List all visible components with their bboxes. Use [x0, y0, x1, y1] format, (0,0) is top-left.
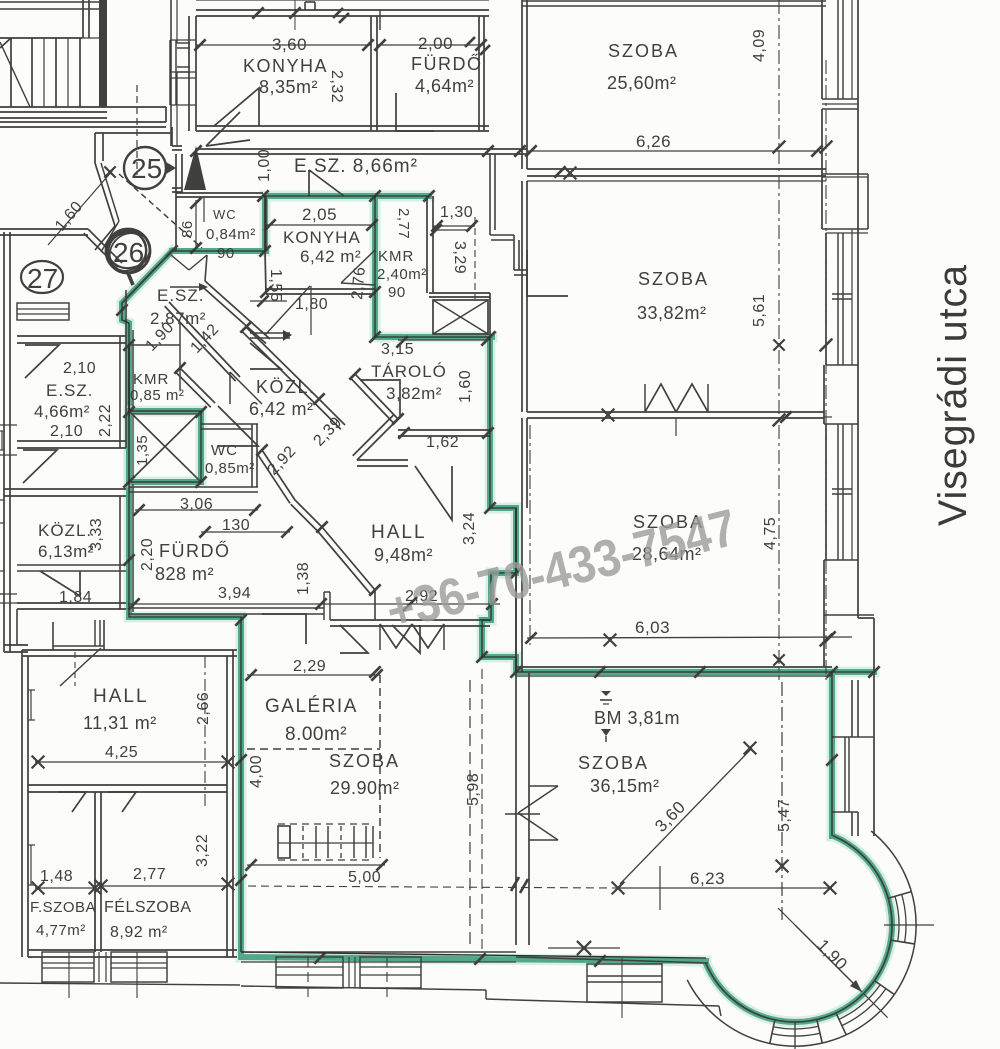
svg-text:2,10: 2,10: [50, 423, 83, 440]
svg-text:0,85m²: 0,85m²: [205, 460, 255, 477]
svg-text:KÖZL.: KÖZL.: [38, 521, 92, 540]
svg-text:90: 90: [217, 245, 235, 262]
svg-text:6,42 m²: 6,42 m²: [300, 247, 361, 266]
svg-text:FÉLSZOBA: FÉLSZOBA: [104, 897, 192, 916]
svg-text:GALÉRIA: GALÉRIA: [265, 696, 358, 717]
svg-text:F.SZOBA: F.SZOBA: [30, 899, 96, 916]
svg-text:1,62: 1,62: [426, 434, 459, 451]
svg-text:6,42 m²: 6,42 m²: [249, 399, 314, 419]
svg-text:5,47: 5,47: [776, 799, 793, 832]
svg-text:SZOBA: SZOBA: [608, 41, 679, 61]
svg-text:8.00m²: 8.00m²: [285, 724, 347, 745]
svg-text:SZOBA: SZOBA: [329, 751, 400, 771]
svg-text:SZOBA: SZOBA: [638, 269, 709, 289]
svg-text:25,60m²: 25,60m²: [607, 73, 677, 93]
svg-text:36,15m²: 36,15m²: [590, 776, 660, 796]
svg-text:3,82m²: 3,82m²: [386, 384, 442, 403]
svg-text:1,35: 1,35: [134, 435, 151, 466]
svg-text:TÁROLÓ: TÁROLÓ: [371, 362, 447, 381]
svg-text:3,94: 3,94: [218, 585, 251, 602]
svg-text:11,31 m²: 11,31 m²: [83, 713, 157, 733]
svg-text:4,64m²: 4,64m²: [415, 76, 474, 96]
svg-text:3,24: 3,24: [461, 512, 478, 545]
svg-text:FÜRDŐ: FÜRDŐ: [159, 540, 231, 561]
svg-text:4,77m²: 4,77m²: [36, 922, 86, 939]
svg-text:0,85 m²: 0,85 m²: [130, 387, 184, 404]
svg-text:6,26: 6,26: [636, 132, 671, 151]
svg-text:6,13m²: 6,13m²: [38, 542, 94, 561]
svg-text:KMR: KMR: [133, 371, 169, 388]
svg-text:2,05: 2,05: [302, 205, 337, 224]
svg-text:2,20: 2,20: [139, 538, 156, 571]
svg-text:2,66: 2,66: [195, 692, 212, 725]
svg-text:1,38: 1,38: [295, 562, 312, 595]
svg-text:9,48m²: 9,48m²: [374, 545, 433, 565]
svg-text:5,00: 5,00: [348, 869, 381, 886]
svg-text:8,92 m²: 8,92 m²: [110, 924, 168, 941]
svg-text:33,82m²: 33,82m²: [637, 303, 707, 323]
svg-text:5,98: 5,98: [465, 773, 482, 806]
svg-text:3,29: 3,29: [451, 241, 468, 274]
svg-text:KONYHA: KONYHA: [243, 56, 328, 76]
svg-text:4,00: 4,00: [248, 755, 265, 788]
svg-text:BM 3,81m: BM 3,81m: [594, 708, 680, 728]
svg-text:Visegrádi utca: Visegrádi utca: [931, 264, 975, 526]
svg-text:WC: WC: [211, 442, 238, 459]
svg-text:3,22: 3,22: [194, 834, 211, 867]
svg-text:2,10: 2,10: [63, 360, 96, 377]
svg-text:4,66m²: 4,66m²: [34, 402, 90, 421]
svg-text:828 m²: 828 m²: [155, 564, 214, 584]
svg-text:2,00: 2,00: [418, 34, 453, 53]
svg-text:E.SZ.: E.SZ.: [157, 286, 205, 305]
svg-text:1,00: 1,00: [256, 149, 273, 182]
svg-text:2,77: 2,77: [133, 866, 166, 883]
svg-text:2,77: 2,77: [395, 208, 412, 239]
svg-text:26: 26: [113, 237, 144, 268]
svg-text:5,61: 5,61: [751, 294, 768, 327]
svg-text:HALL: HALL: [371, 522, 427, 543]
svg-text:90: 90: [388, 284, 406, 301]
svg-text:KMR: KMR: [378, 248, 414, 265]
svg-text:1,30: 1,30: [440, 204, 473, 221]
svg-text:4,09: 4,09: [751, 29, 768, 62]
svg-text:86: 86: [179, 220, 196, 238]
svg-text:E.SZ.: E.SZ.: [46, 381, 94, 400]
svg-text:2,32: 2,32: [328, 70, 345, 103]
svg-text:0,84m²: 0,84m²: [206, 226, 256, 243]
svg-text:6,23: 6,23: [690, 869, 725, 888]
svg-text:3,15: 3,15: [381, 341, 414, 358]
svg-text:WC: WC: [213, 207, 237, 222]
svg-text:1,60: 1,60: [457, 370, 474, 403]
svg-text:KÖZL.: KÖZL.: [256, 377, 316, 397]
svg-text:6,03: 6,03: [635, 618, 670, 637]
svg-text:27: 27: [27, 263, 58, 294]
svg-text:29.90m²: 29.90m²: [330, 778, 400, 798]
svg-text:1,84: 1,84: [59, 589, 92, 606]
svg-text:3,33: 3,33: [88, 518, 105, 551]
svg-text:SZOBA: SZOBA: [578, 753, 649, 773]
svg-text:4,75: 4,75: [762, 517, 779, 550]
svg-text:2,40m²: 2,40m²: [377, 266, 427, 283]
svg-text:2,29: 2,29: [293, 658, 326, 675]
svg-text:FÜRDŐ: FÜRDŐ: [411, 53, 483, 74]
svg-text:4,25: 4,25: [105, 744, 138, 761]
svg-text:HALL: HALL: [93, 686, 149, 707]
svg-text:1,55: 1,55: [267, 269, 284, 302]
svg-text:25: 25: [131, 153, 162, 184]
svg-text:8,35m²: 8,35m²: [259, 77, 318, 97]
svg-text:E.SZ. 8,66m²: E.SZ. 8,66m²: [294, 156, 418, 177]
svg-text:2,22: 2,22: [97, 404, 114, 437]
svg-text:KONYHA: KONYHA: [283, 228, 361, 247]
